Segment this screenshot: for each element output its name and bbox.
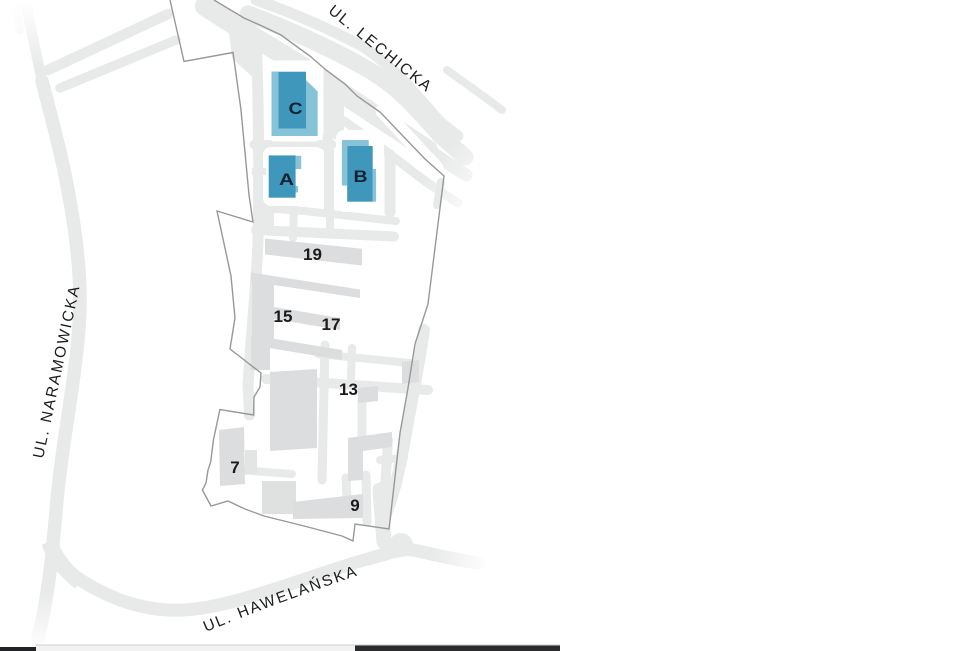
svg-text:B: B	[354, 167, 368, 186]
svg-text:15: 15	[274, 307, 293, 326]
svg-text:13: 13	[339, 380, 358, 399]
svg-text:9: 9	[350, 496, 359, 515]
svg-text:A: A	[279, 170, 294, 189]
svg-text:19: 19	[303, 245, 322, 264]
svg-text:C: C	[289, 99, 303, 118]
svg-text:17: 17	[322, 315, 341, 334]
svg-text:7: 7	[230, 458, 239, 477]
